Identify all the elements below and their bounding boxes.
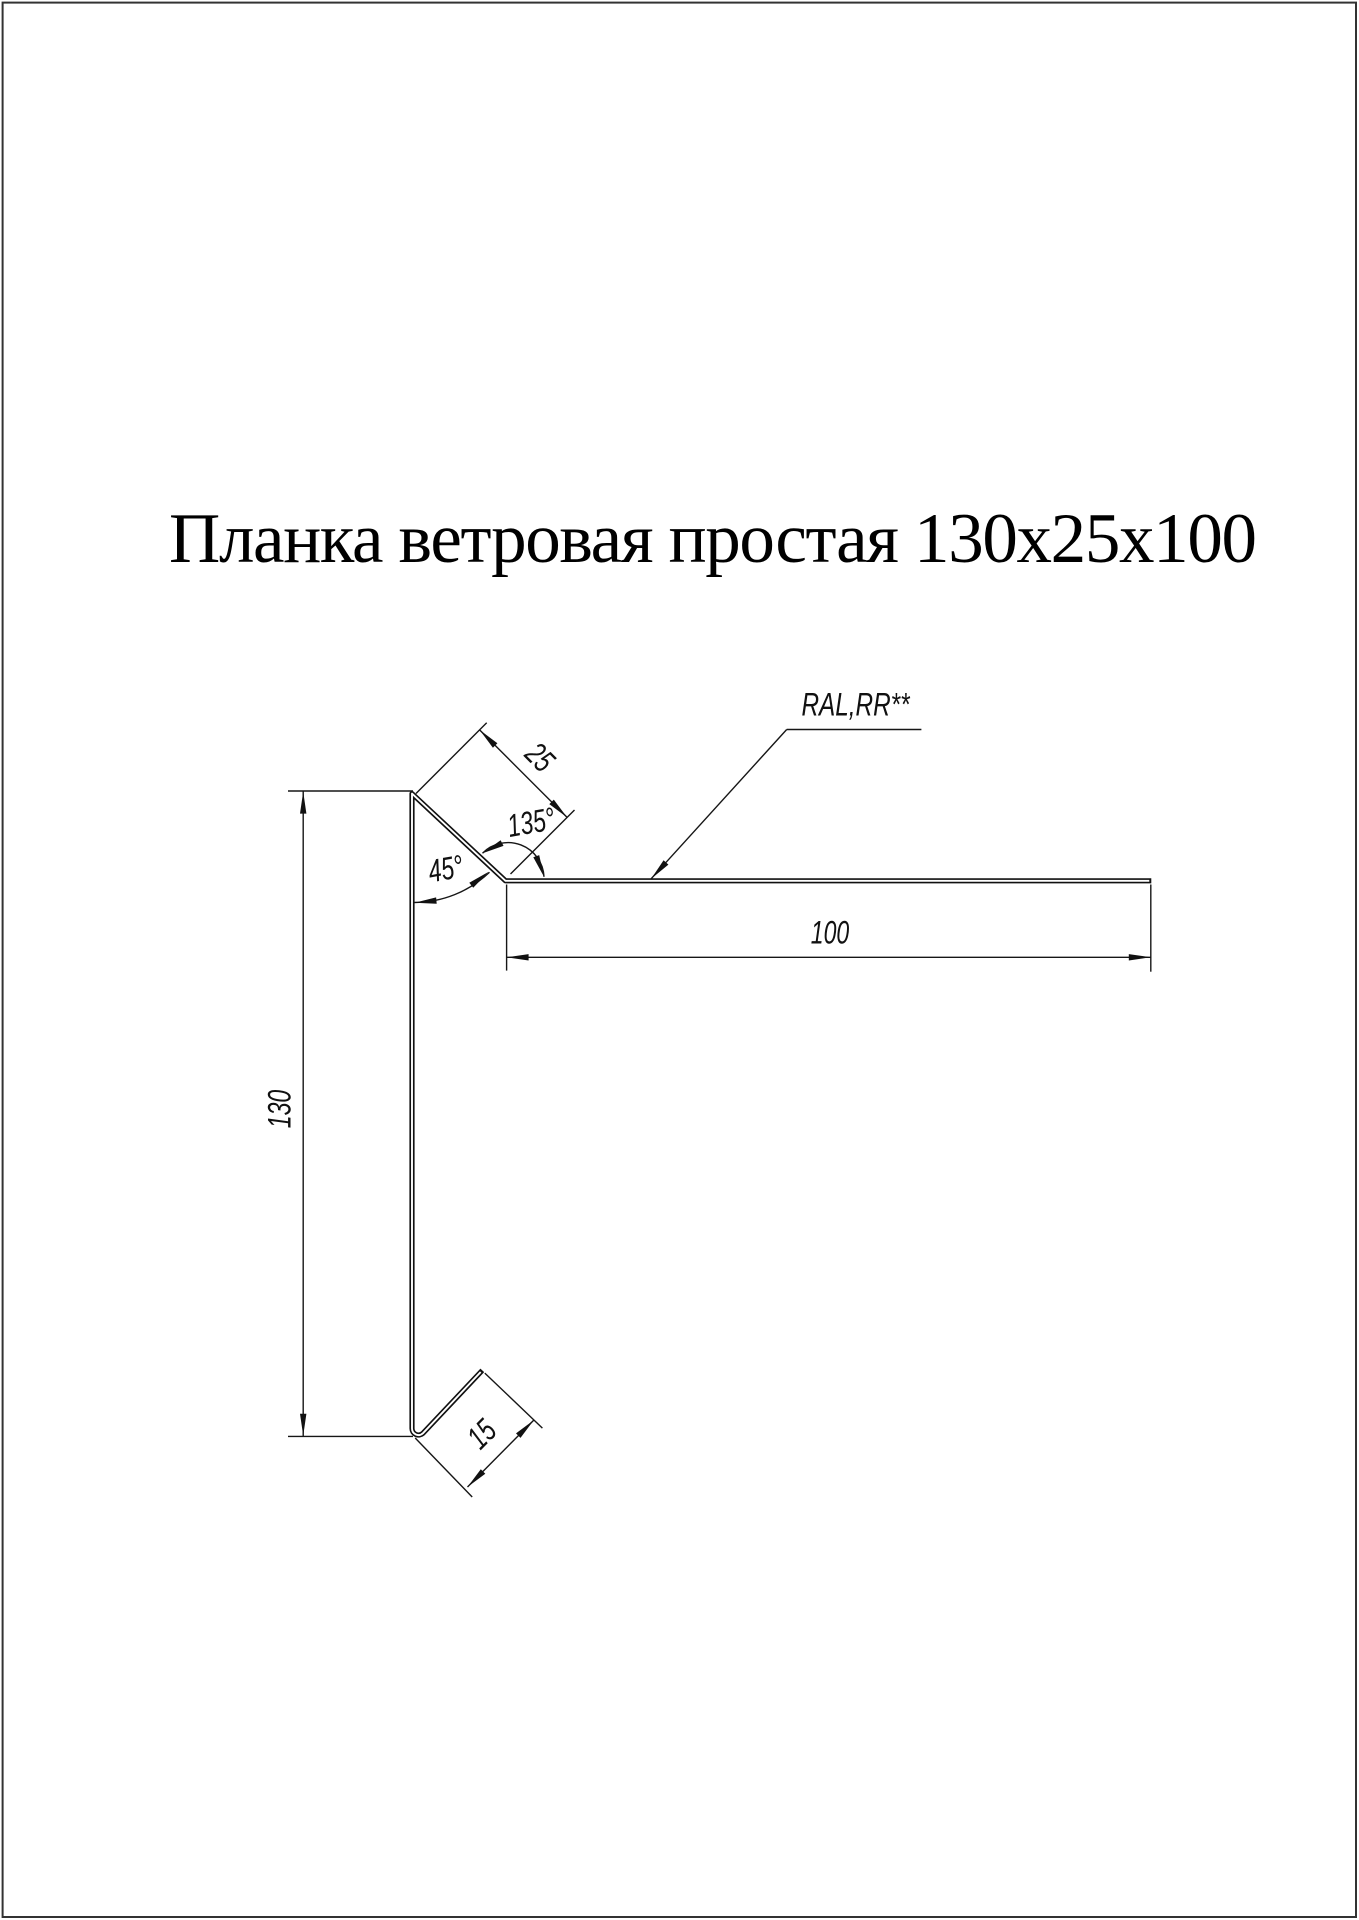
svg-text:130: 130 (262, 1089, 298, 1128)
svg-text:RAL,RR**: RAL,RR** (801, 687, 910, 723)
svg-text:45°: 45° (425, 848, 465, 889)
svg-text:100: 100 (811, 915, 850, 951)
svg-text:Планка ветровая простая 130х25: Планка ветровая простая 130х25х100 (169, 500, 1257, 578)
